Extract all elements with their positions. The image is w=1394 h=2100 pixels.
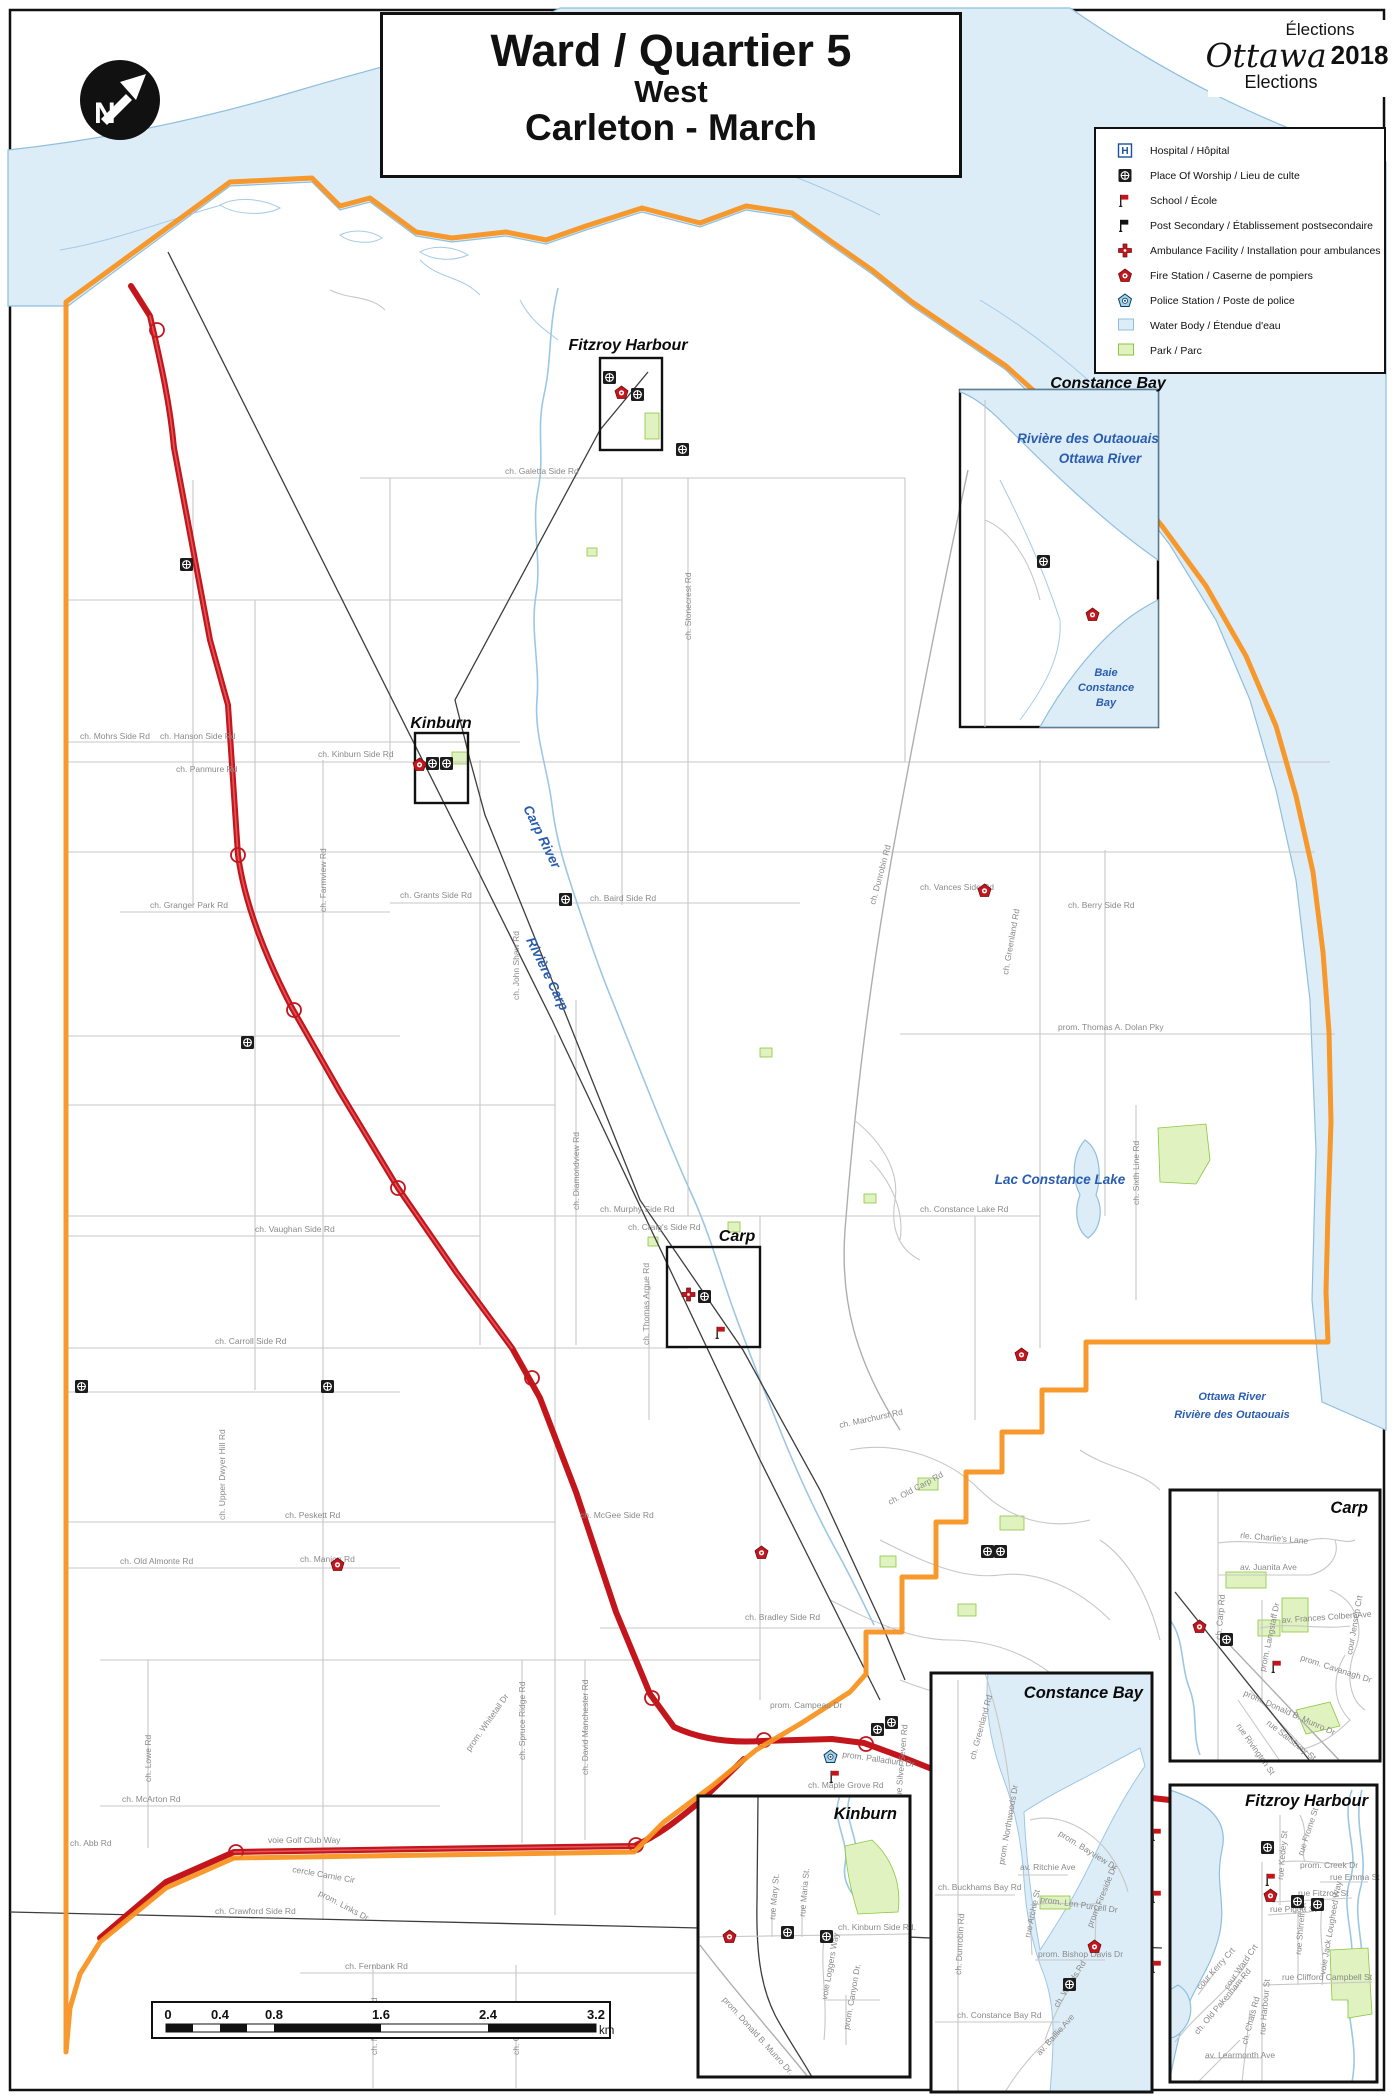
legend-item-worship: Place Of Worship / Lieu de culte xyxy=(1100,163,1380,188)
road-label: prom. Whitetail Dr xyxy=(463,1692,510,1754)
water-label: Baie xyxy=(1094,667,1117,679)
worship-icon xyxy=(885,1716,898,1729)
inset-title-kinburn: Kinburn xyxy=(834,1805,897,1823)
legend-label: Fire Station / Caserne de pompiers xyxy=(1150,270,1313,282)
fire-icon xyxy=(1116,267,1136,284)
ambulance-icon xyxy=(1116,242,1136,259)
scale-tick: 3.2 xyxy=(587,2007,605,2022)
worship-icon xyxy=(820,1930,833,1943)
legend-item-hospital: Hospital / Hôpital xyxy=(1100,138,1380,163)
road-label: ch. Peskett Rd xyxy=(285,1510,341,1520)
page-title: Ward / Quartier 5 xyxy=(383,27,959,76)
road-label: av. Ritchie Ave xyxy=(1020,1862,1076,1872)
legend-item-fire: Fire Station / Caserne de pompiers xyxy=(1100,263,1380,288)
hospital-icon xyxy=(1116,142,1136,159)
legend-label: Place Of Worship / Lieu de culte xyxy=(1150,170,1300,182)
road-label: av. Juanita Ave xyxy=(1240,1562,1297,1572)
worship-icon xyxy=(676,443,689,456)
constance-lake xyxy=(1074,1140,1100,1238)
road-label: ch. Kinburn Side Rd. xyxy=(838,1922,916,1932)
inset-carp: rle. Charlie's Laneav. Juanita Aveav. Fr… xyxy=(1170,1490,1380,1777)
scale-tick: 0.4 xyxy=(211,2007,230,2022)
worship-icon xyxy=(241,1036,254,1049)
worship-icon xyxy=(180,558,193,571)
worship-icon xyxy=(981,1545,994,1558)
inset-fitzroy-harbour: rue Frome Strue Kedey Stprom. Creek Drru… xyxy=(1170,1785,1380,2082)
worship-icon xyxy=(1220,1633,1233,1646)
settlement-label: Fitzroy Harbour xyxy=(568,337,688,354)
road-label: ch. Upper Dwyer Hill Rd xyxy=(217,1429,227,1520)
legend-label: Water Body / Étendue d'eau xyxy=(1150,320,1281,332)
legend: Hospital / HôpitalPlace Of Worship / Lie… xyxy=(1094,127,1386,374)
fire-icon xyxy=(615,386,628,399)
water-label: Rivière des Outaouais xyxy=(1174,1409,1290,1421)
settlement-label: Constance Bay xyxy=(1050,375,1167,392)
elections-ottawa-2018-logo: Élections Ottawa 2018 Elections xyxy=(1208,20,1388,97)
school-icon xyxy=(716,1327,725,1339)
road-label: av. Learmonth Ave xyxy=(1205,2050,1275,2060)
scale-tick: 1.6 xyxy=(372,2007,390,2022)
fire-icon xyxy=(1086,608,1099,621)
road-label: ch. Abb Rd xyxy=(70,1838,112,1848)
page-subtitle-west: West xyxy=(383,76,959,107)
road-label: prom. Bishop Davis Dr xyxy=(1038,1949,1123,1959)
legend-label: Post Secondary / Établissement postsecon… xyxy=(1150,220,1373,232)
road-label: ch. Bradley Side Rd xyxy=(745,1612,820,1622)
legend-label: Hospital / Hôpital xyxy=(1150,145,1229,157)
road-label: ch. McArton Rd xyxy=(122,1794,181,1804)
water-label: Ottawa River xyxy=(1059,451,1142,466)
title-box: Ward / Quartier 5 West Carleton - March xyxy=(380,12,962,178)
legend-item-school: School / École xyxy=(1100,188,1380,213)
road-label: ch. Murphy Side Rd xyxy=(600,1204,675,1214)
water-label: Rivière Carp xyxy=(523,935,571,1013)
legend-rows: Hospital / HôpitalPlace Of Worship / Lie… xyxy=(1100,138,1380,363)
ward-map-page: { "title": {"line1": "Ward / Quartier 5"… xyxy=(0,0,1394,2100)
road-label: ch. McGee Side Rd xyxy=(580,1510,654,1520)
worship-icon xyxy=(631,388,644,401)
road-label: ch. Farmview Rd xyxy=(318,848,328,912)
worship-icon xyxy=(603,371,616,384)
police-icon xyxy=(824,1750,837,1763)
settlement-label: Kinburn xyxy=(410,715,472,732)
road-label: ch. Sixth Line Rd xyxy=(1131,1140,1141,1205)
scale-tick: 0.8 xyxy=(265,2007,283,2022)
road-label: ch. Galetta Side Rd xyxy=(505,466,579,476)
road-label: ch. Carroll Side Rd xyxy=(215,1336,287,1346)
road-label: ch. Constance Lake Rd xyxy=(920,1204,1009,1214)
postsecondary-icon xyxy=(1116,217,1136,234)
legend-item-postsecondary: Post Secondary / Établissement postsecon… xyxy=(1100,213,1380,238)
water-label: Ottawa River xyxy=(1198,1391,1266,1403)
water-label: Constance xyxy=(1078,682,1134,694)
road-label: cercle Carnie Cir xyxy=(292,1864,356,1885)
legend-label: Park / Parc xyxy=(1150,345,1202,357)
worship-icon xyxy=(1063,1978,1076,1991)
road-label: prom. Links Dr xyxy=(317,1888,371,1923)
worship-icon xyxy=(321,1380,334,1393)
worship-icon xyxy=(994,1545,1007,1558)
road-label: ch. Mohrs Side Rd xyxy=(80,731,150,741)
road-label: ch. Diamondview Rd xyxy=(571,1132,581,1210)
school-icon xyxy=(1116,192,1136,209)
worship-icon xyxy=(1311,1898,1324,1911)
legend-item-police: Police Station / Poste de police xyxy=(1100,288,1380,313)
scale-bar: 0 0.4 0.8 1.6 2.4 3.2 km xyxy=(152,2002,614,2038)
waterbody-icon xyxy=(1116,317,1136,334)
road-label: ch. Hanson Side Rd xyxy=(160,731,236,741)
legend-label: School / École xyxy=(1150,195,1217,207)
legend-item-ambulance: Ambulance Facility / Installation pour a… xyxy=(1100,238,1380,263)
legend-item-waterbody: Water Body / Étendue d'eau xyxy=(1100,313,1380,338)
road-label: rue Emma St xyxy=(1330,1872,1380,1882)
worship-icon xyxy=(1037,555,1050,568)
carp-box xyxy=(667,1247,760,1347)
worship-icon xyxy=(781,1926,794,1939)
legend-label: Ambulance Facility / Installation pour a… xyxy=(1150,245,1381,257)
road-label: rue Clifford Campbell St xyxy=(1282,1972,1373,1982)
road-label: ch. Craig's Side Rd xyxy=(628,1222,701,1232)
road-label: ch. Crawford Side Rd xyxy=(215,1906,296,1916)
road-label: ch. Lowe Rd xyxy=(143,1734,153,1782)
worship-icon xyxy=(75,1380,88,1393)
north-arrow-icon: N xyxy=(76,56,164,144)
settlement-label: Carp xyxy=(719,1228,756,1245)
road-label: ch. Grants Side Rd xyxy=(400,890,472,900)
fire-icon xyxy=(755,1546,768,1559)
inset-title-constance-bay: Constance Bay xyxy=(1024,1684,1144,1702)
road-label: ch. Fernbank Rd xyxy=(345,1961,408,1971)
road-label: ch. Marchurst Rd xyxy=(838,1407,904,1430)
road-label: ch. Old Almonte Rd xyxy=(120,1556,194,1566)
inset-title-carp: Carp xyxy=(1330,1499,1368,1517)
road-label: ch. Baird Side Rd xyxy=(590,893,656,903)
logo-brand: Ottawa xyxy=(1206,39,1327,72)
school-icon xyxy=(1152,1891,1161,1903)
road-label: ch. Thomas Argue Rd xyxy=(641,1263,651,1345)
road-label: ch. Granger Park Rd xyxy=(150,900,228,910)
worship-icon xyxy=(1261,1841,1274,1854)
scale-unit: km xyxy=(599,2025,614,2037)
school-icon xyxy=(1152,1961,1161,1973)
scale-tick: 2.4 xyxy=(479,2007,498,2022)
road-label: ch. Constance Bay Rd xyxy=(957,2010,1042,2020)
road-label: voie Golf Club Way xyxy=(268,1835,341,1845)
legend-label: Police Station / Poste de police xyxy=(1150,295,1295,307)
road-label: ch. Panmure Rd xyxy=(176,764,238,774)
legend-item-park: Park / Parc xyxy=(1100,338,1380,363)
road-label: ch. David Manchester Rd xyxy=(580,1679,590,1775)
road-label: prom. Campeau Dr xyxy=(770,1700,842,1710)
school-icon xyxy=(1152,1829,1161,1841)
worship-icon xyxy=(1291,1895,1304,1908)
police-icon xyxy=(1116,292,1136,309)
worship-icon xyxy=(871,1723,884,1736)
park-icon xyxy=(1116,342,1136,359)
road-label: prom. Creek Dr xyxy=(1300,1860,1358,1870)
fire-icon xyxy=(1015,1348,1028,1361)
scale-tick: 0 xyxy=(164,2007,171,2022)
road-label: ch. Spruce Ridge Rd xyxy=(517,1681,527,1760)
inset-constance-bay: ch. Greenland Rdprom. Northwoods Drprom.… xyxy=(931,1673,1152,2092)
road-label: ch. Stonecrest Rd xyxy=(683,572,693,640)
road-label: ch. Kinburn Side Rd xyxy=(318,749,394,759)
carp-river xyxy=(420,260,874,1625)
worship-icon xyxy=(426,757,439,770)
inset-title-fitzroy-harbour: Fitzroy Harbour xyxy=(1245,1792,1369,1810)
road-label: ch. Berry Side Rd xyxy=(1068,900,1135,910)
worship-icon xyxy=(1116,167,1136,184)
logo-elections-en: Elections xyxy=(1208,72,1388,93)
worship-icon xyxy=(559,893,572,906)
logo-year: 2018 xyxy=(1331,40,1389,71)
water-label: Lac Constance Lake xyxy=(995,1172,1126,1187)
road-label: ch. Greenland Rd xyxy=(1000,908,1021,976)
road-label: ch. Maple Grove Rd xyxy=(808,1780,884,1790)
water-label: Bay xyxy=(1096,697,1117,709)
road-label: ch. John Shaw Rd xyxy=(511,931,521,1000)
water-label: Rivière des Outaouais xyxy=(1017,431,1159,446)
road-label: ch. Buckhams Bay Rd xyxy=(938,1882,1022,1892)
road-label: ch. Manion Rd xyxy=(300,1554,355,1564)
road-label: ch. Vaughan Side Rd xyxy=(255,1224,335,1234)
worship-icon xyxy=(698,1290,711,1303)
worship-icon xyxy=(440,757,453,770)
page-subtitle-ward-name: Carleton - March xyxy=(383,107,959,150)
road-label: prom. Thomas A. Dolan Pky xyxy=(1058,1022,1164,1032)
